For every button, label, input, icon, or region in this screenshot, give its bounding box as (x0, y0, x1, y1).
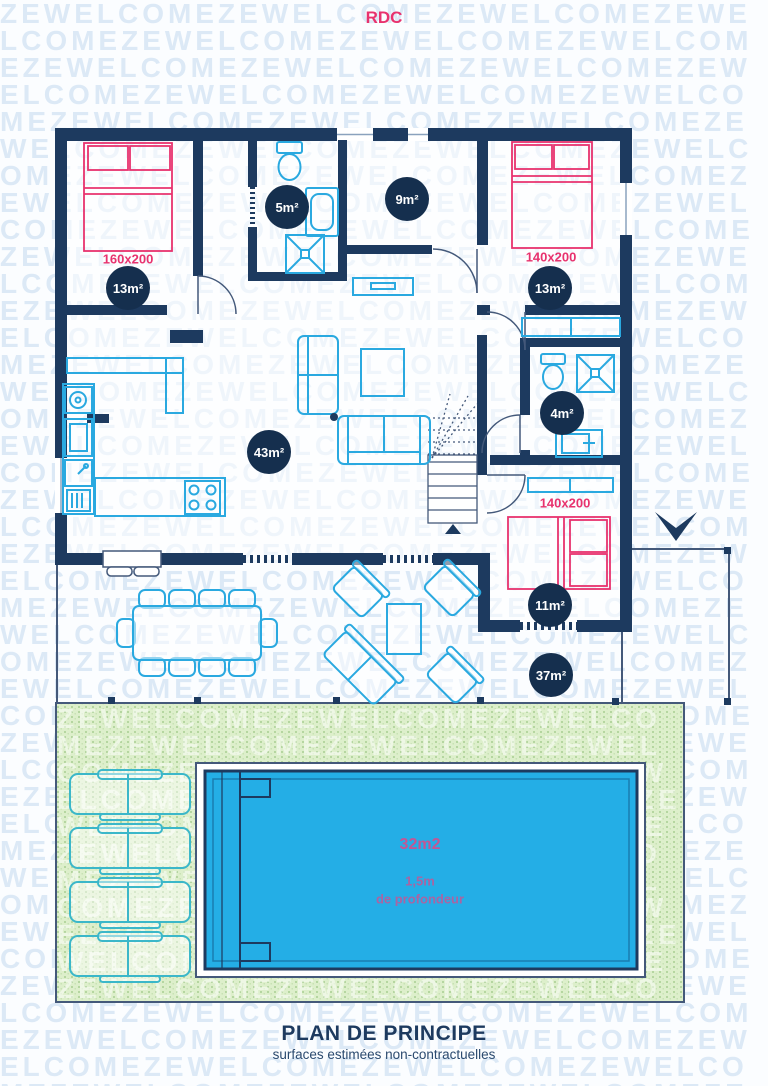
area-badge-shower-room: 4m² (540, 391, 584, 435)
area-badge-wc: 5m² (265, 185, 309, 229)
pool-depth-caption: de profondeur (376, 892, 464, 907)
page-subtitle: surfaces estimées non-contractuelles (0, 1047, 768, 1062)
pool-depth-label: 1,5m (405, 874, 435, 889)
footer: PLAN DE PRINCIPE surfaces estimées non-c… (0, 1022, 768, 1062)
page-title: PLAN DE PRINCIPE (0, 1022, 768, 1046)
area-badge-living: 43m² (247, 430, 291, 474)
area-badge-bedroom-left: 13m² (106, 266, 150, 310)
pool-area-label: 32m2 (400, 836, 441, 854)
bed-size-label: 140x200 (526, 250, 577, 265)
floor-label: RDC (0, 8, 768, 28)
bed-size-label: 140x200 (540, 496, 591, 511)
area-badge-bathroom: 9m² (385, 177, 429, 221)
bed-size-label: 160x200 (103, 252, 154, 267)
area-badge-bedroom-right: 13m² (528, 266, 572, 310)
area-badge-bedroom-bottom: 11m² (528, 583, 572, 627)
garden-watermark: ZEWELCOMEZEWELCOMEZEWELCOMEZEWELCOMEZEWE… (57, 705, 683, 1001)
area-badge-terrace: 37m² (529, 653, 573, 697)
